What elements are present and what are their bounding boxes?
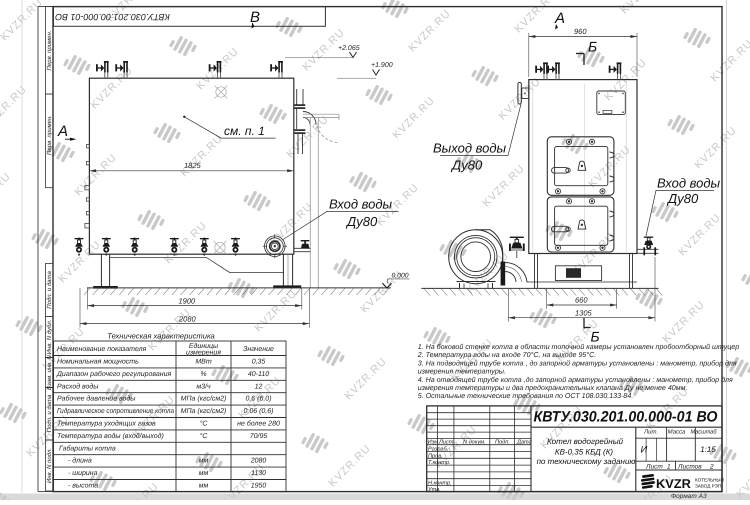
svg-text:А: А	[57, 123, 68, 140]
svg-text:Формат А3: Формат А3	[671, 493, 707, 500]
svg-text:КОТЕЛЬНЫЙ: КОТЕЛЬНЫЙ	[695, 477, 724, 483]
svg-text:960: 960	[574, 27, 587, 36]
svg-text:Ду80: Ду80	[450, 158, 483, 173]
svg-text:Техническая характеристика: Техническая характеристика	[107, 332, 215, 341]
svg-text:Диапазон рабочего регулировани: Диапазон рабочего регулирования	[56, 370, 172, 378]
svg-text:1: 1	[667, 464, 671, 471]
svg-text:4. На отводящей трубе котла ,: 4. На отводящей трубе котла ,до запорной…	[418, 376, 733, 384]
svg-text:Инв. N дубл.: Инв. N дубл.	[46, 320, 53, 355]
svg-text:0,6 (6,0): 0,6 (6,0)	[245, 395, 271, 403]
svg-text:Б: Б	[588, 39, 597, 55]
svg-text:2: 2	[709, 464, 714, 471]
svg-text:3. На подводящей трубе котла: 3. На подводящей трубе котла , до запорн…	[418, 359, 737, 367]
svg-text:Ду80: Ду80	[666, 191, 699, 206]
svg-text:2080: 2080	[178, 314, 197, 323]
svg-text:Утв.: Утв.	[427, 487, 441, 493]
svg-text:Ду80: Ду80	[345, 214, 378, 229]
svg-text:Дата: Дата	[516, 440, 532, 446]
svg-text:°С: °С	[200, 421, 209, 428]
svg-text:Лист: Лист	[438, 440, 454, 446]
svg-text:И: И	[641, 445, 648, 456]
svg-text:мм: мм	[199, 470, 209, 477]
svg-text:Значение: Значение	[243, 346, 274, 353]
svg-text:А: А	[554, 10, 565, 27]
svg-text:КВ-0,35 КБД (К): КВ-0,35 КБД (К)	[555, 448, 613, 457]
svg-text:мм: мм	[199, 483, 209, 490]
svg-text:Габариты котла: Габариты котла	[59, 444, 116, 452]
svg-text:Выход воды: Выход воды	[433, 141, 507, 156]
svg-text:Н.контр.: Н.контр.	[428, 481, 452, 487]
svg-text:1305: 1305	[575, 308, 593, 317]
svg-text:Котел водогрейный: Котел водогрейный	[547, 437, 624, 446]
svg-text:- высота: - высота	[68, 483, 98, 490]
svg-text:Гидравлическое сопротивление к: Гидравлическое сопротивление котла	[57, 407, 174, 415]
svg-text:N докум.: N докум.	[463, 439, 486, 446]
svg-text:70/95: 70/95	[250, 432, 268, 440]
svg-text:МПа (кгс/см2): МПа (кгс/см2)	[181, 395, 227, 403]
svg-text:Подп.: Подп.	[495, 439, 510, 446]
svg-text:измерения температуры и два пр: измерения температуры и два предохраните…	[418, 384, 688, 392]
svg-text:2. Температура воды на входе: 2. Температура воды на входе 70°С, на вы…	[417, 351, 597, 359]
svg-text:5. Остальные технические треб: 5. Остальные технические требования по О…	[418, 392, 634, 400]
svg-text:1130: 1130	[251, 470, 266, 477]
svg-text:12: 12	[255, 383, 263, 390]
svg-text:Рабочее давление воды: Рабочее давление воды	[57, 395, 136, 403]
svg-text:Пров.: Пров.	[428, 453, 443, 459]
svg-text:не более 280: не более 280	[237, 420, 280, 428]
svg-text:2080: 2080	[250, 458, 267, 465]
svg-text:измерения температуры.: измерения температуры.	[418, 368, 506, 376]
svg-text:Температура уходящих газов: Температура уходящих газов	[57, 420, 156, 428]
svg-text:Подп. и дата: Подп. и дата	[46, 271, 53, 309]
svg-text:1950: 1950	[251, 483, 267, 490]
svg-text:1900: 1900	[179, 296, 197, 305]
svg-text:МВт: МВт	[195, 359, 212, 366]
svg-text:измерения: измерения	[186, 350, 221, 357]
svg-text:+1.900: +1.900	[371, 62, 393, 69]
svg-text:Температура воды (вход/выход): Температура воды (вход/выход)	[57, 432, 164, 440]
svg-text:Листов: Листов	[677, 464, 702, 471]
svg-text:Т.контр.: Т.контр.	[428, 460, 451, 466]
svg-text:Лист: Лист	[645, 464, 663, 471]
svg-text:Инв. N подл.: Инв. N подл.	[46, 448, 53, 483]
svg-text:KVZR: KVZR	[656, 476, 691, 491]
svg-text:Изм.: Изм.	[428, 440, 440, 446]
svg-text:1. На боковой стенке котла в: 1. На боковой стенке котла в области топ…	[418, 343, 740, 351]
svg-text:660: 660	[575, 296, 588, 305]
svg-text:см. п. 1: см. п. 1	[224, 124, 265, 138]
svg-text:0.000: 0.000	[392, 273, 409, 280]
svg-text:В: В	[250, 9, 260, 26]
svg-text:Масса: Масса	[668, 429, 686, 436]
svg-text:Вход воды: Вход воды	[329, 197, 393, 212]
svg-text:- длина: - длина	[68, 457, 92, 465]
svg-text:Перв. примен.: Перв. примен.	[46, 31, 53, 71]
svg-text:Масштаб: Масштаб	[691, 429, 718, 436]
svg-text:мм: мм	[199, 458, 209, 465]
svg-text:КВТУ.030.201.00.000-01 ВО: КВТУ.030.201.00.000-01 ВО	[534, 409, 718, 426]
svg-text:- ширина: - ширина	[68, 470, 98, 477]
svg-text:по техническому заданию: по техническому заданию	[537, 457, 636, 466]
svg-text:1:15: 1:15	[700, 445, 716, 454]
svg-text:°С: °С	[200, 433, 209, 440]
svg-text:+2.065: +2.065	[338, 45, 360, 52]
svg-text:МПа (кгс/см2): МПа (кгс/см2)	[181, 407, 227, 415]
svg-text:ЗАВОД РЭП: ЗАВОД РЭП	[695, 484, 721, 489]
svg-text:%: %	[200, 371, 206, 378]
svg-text:Разраб.: Разраб.	[428, 446, 448, 453]
svg-text:Вход воды: Вход воды	[657, 176, 721, 191]
svg-text:1825: 1825	[184, 161, 202, 170]
svg-text:Подп. и дата: Подп. и дата	[46, 394, 53, 432]
svg-text:40-110: 40-110	[248, 371, 269, 378]
svg-text:м3/ч: м3/ч	[196, 382, 211, 390]
svg-text:Наименование показателя: Наименование показателя	[57, 346, 147, 353]
svg-text:0,35: 0,35	[252, 359, 266, 366]
svg-text:Взам. инв. N: Взам. инв. N	[46, 354, 53, 390]
svg-text:Расход воды: Расход воды	[57, 382, 99, 390]
svg-text:Лит.: Лит.	[643, 429, 658, 436]
svg-text:Перв. примен.: Перв. примен.	[46, 115, 53, 155]
svg-text:КВТУ.030.201.00.000-01 ВО: КВТУ.030.201.00.000-01 ВО	[55, 12, 170, 22]
svg-text:0,06 (0,6): 0,06 (0,6)	[244, 407, 274, 415]
svg-text:Номинальная мощность: Номинальная мощность	[57, 359, 139, 366]
